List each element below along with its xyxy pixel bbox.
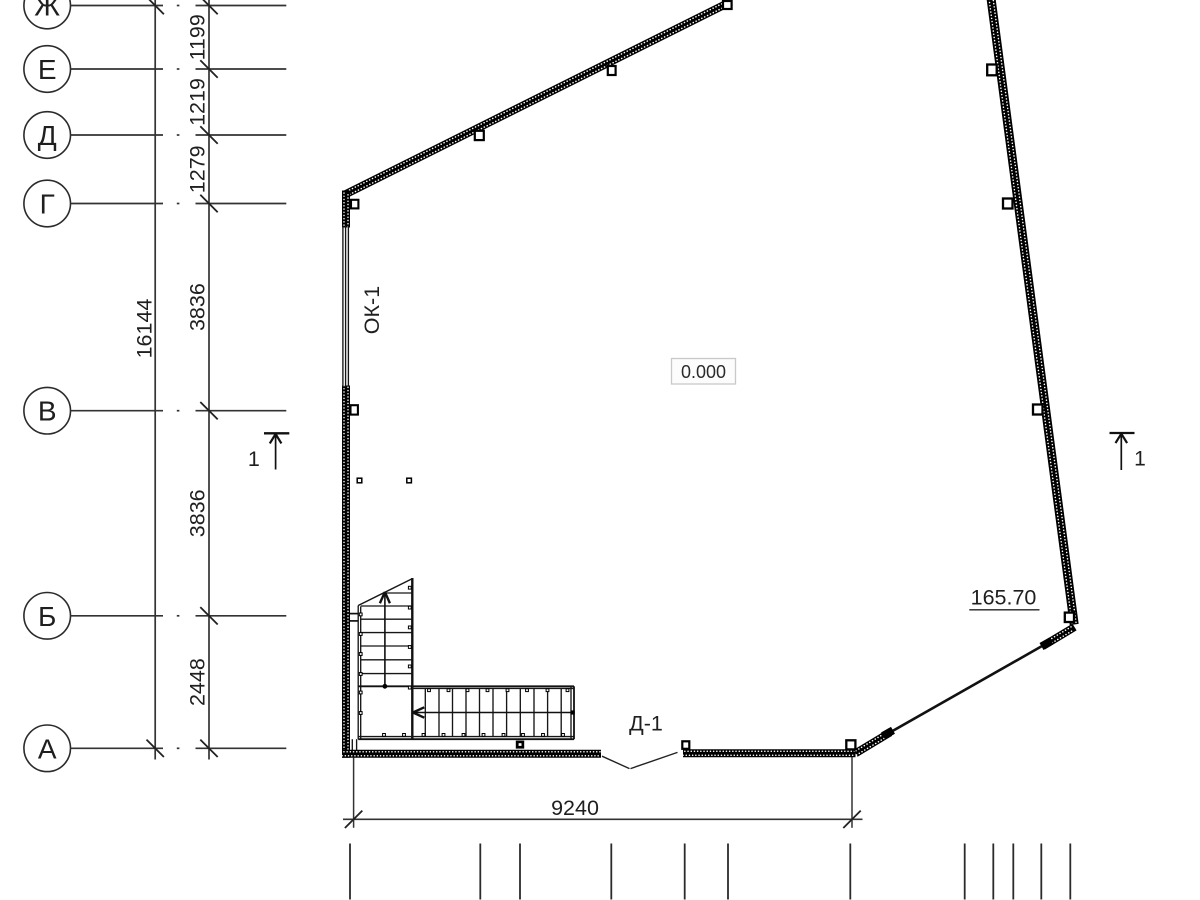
svg-text:1219: 1219 [185,78,209,126]
svg-text:16144: 16144 [133,299,157,359]
svg-text:ОК-1: ОК-1 [360,286,384,334]
svg-text:Е: Е [38,54,57,85]
svg-text:Г: Г [40,189,55,220]
svg-text:А: А [38,733,57,764]
svg-text:Ж: Ж [34,0,60,22]
svg-text:3836: 3836 [185,283,209,331]
svg-text:Д: Д [38,120,57,151]
svg-text:1279: 1279 [185,145,209,193]
svg-text:В: В [38,396,57,427]
svg-text:0.000: 0.000 [681,362,726,382]
svg-text:1199: 1199 [185,14,209,60]
svg-text:9240: 9240 [551,796,599,820]
svg-text:Д-1: Д-1 [629,712,663,736]
svg-text:2448: 2448 [185,658,209,706]
svg-text:Б: Б [38,601,56,632]
svg-text:1: 1 [248,447,260,471]
svg-text:3836: 3836 [185,489,209,537]
svg-text:1: 1 [1134,448,1146,471]
svg-text:165.70: 165.70 [971,585,1037,609]
